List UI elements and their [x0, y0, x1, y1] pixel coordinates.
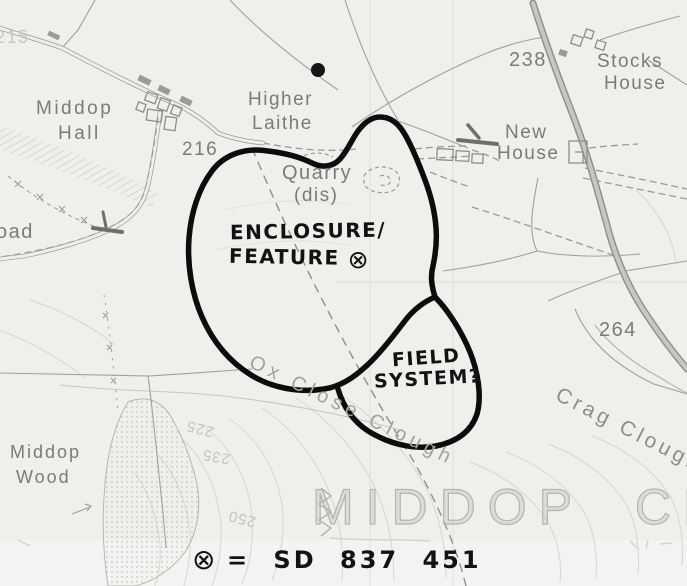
spot-height-264: 264: [599, 320, 637, 340]
scanned-os-map: 215 Middop Hall Higher Laithe 216 Quarry…: [0, 0, 687, 586]
grid-reference-text: = SD 837 451: [227, 548, 482, 572]
label-new-house-line1: New: [505, 123, 548, 142]
circled-x-symbol: ⊗: [347, 245, 370, 274]
label-middop-hall-line1: Middop: [36, 99, 113, 118]
terrain-shading: [0, 126, 199, 586]
label-road-partial: oad: [0, 222, 34, 242]
circled-x-legend-symbol: ⊗: [192, 546, 217, 574]
label-quarry-dis: (dis): [294, 186, 338, 205]
label-higher-laithe-line1: Higher: [248, 90, 313, 109]
label-stocks-house-line1: Stocks: [597, 52, 663, 71]
label-higher-laithe-line2: Laithe: [252, 114, 313, 133]
spot-height-238: 238: [509, 50, 547, 70]
label-middop-cp: MIDDOP CP: [312, 482, 687, 532]
annotation-grid-reference: ⊗ = SD 837 451: [192, 546, 482, 574]
contour-label-235: 235: [201, 447, 231, 467]
spot-height-216: 216: [182, 140, 218, 159]
label-middop-wood-line1: Middop: [10, 443, 81, 461]
label-middop-hall-line2: Hall: [58, 124, 101, 143]
label-stocks-house-line2: House: [604, 74, 666, 93]
hand-dot: [311, 63, 325, 77]
label-middop-wood-line2: Wood: [16, 468, 71, 486]
annotation-feature-text: FEATURE: [229, 244, 340, 270]
field-boundaries: [0, 0, 687, 548]
label-new-house-line2: House: [497, 144, 559, 163]
spot-height-215: 215: [0, 28, 30, 46]
label-quarry: Quarry: [282, 163, 352, 183]
annotation-enclosure-line1: ENCLOSURE/: [230, 220, 386, 243]
annotation-enclosure-line2: FEATURE⊗: [229, 245, 371, 272]
